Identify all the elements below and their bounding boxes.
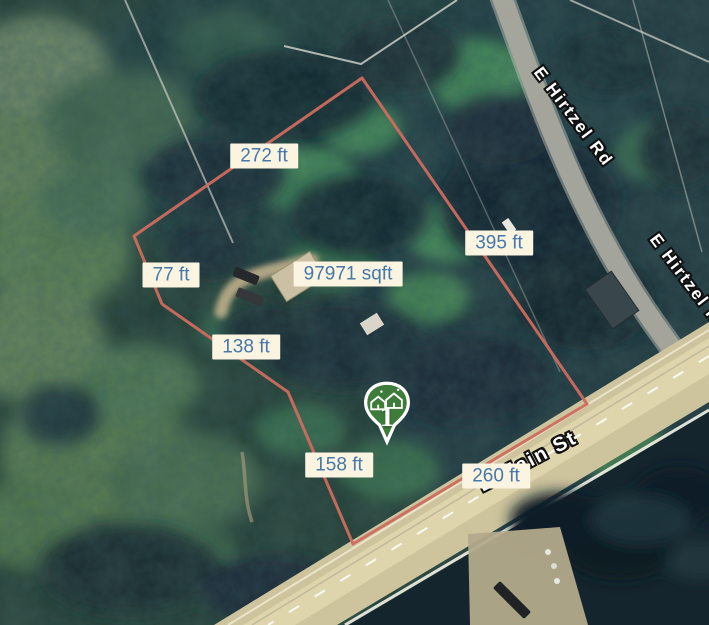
area-label-97971sqft: 97971 sqft: [294, 262, 403, 287]
distance-label-bottom-260ft: 260 ft: [462, 464, 530, 489]
satellite-imagery: [0, 0, 709, 625]
distance-label-right-395ft: 395 ft: [465, 231, 533, 256]
distance-label-upper-left-77ft: 77 ft: [143, 263, 200, 288]
distance-label-mid-left-138ft: 138 ft: [212, 335, 280, 360]
distance-label-lower-left-158ft: 158 ft: [305, 453, 373, 478]
marker-count: 1: [361, 401, 413, 434]
distance-label-top-272ft: 272 ft: [230, 144, 298, 169]
property-marker[interactable]: 1: [361, 380, 413, 446]
satellite-map[interactable]: E Hirtzel Rd E Hirtzel Rd E Main St 272 …: [0, 0, 709, 625]
